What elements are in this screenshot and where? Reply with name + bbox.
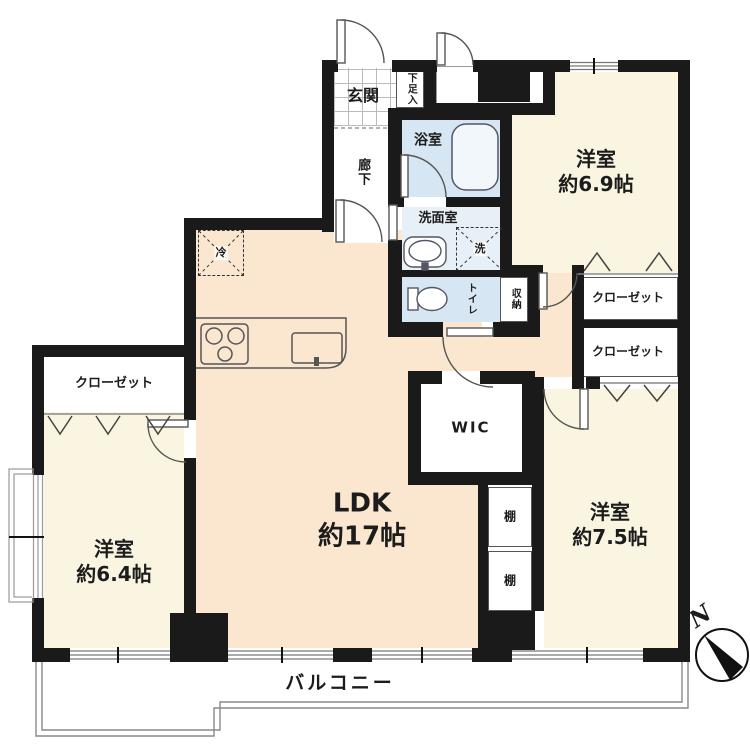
wall-segment [184,218,196,357]
wall-segment [586,377,600,389]
wall-segment [184,458,196,615]
shoe-cabinet-label: 下足入 [404,73,417,106]
fridge-label: 冷 [215,246,228,260]
wall-segment [32,345,44,475]
hallway-label: 廊下 [354,158,370,186]
balcony-label: バルコニー [285,672,395,696]
bedroom-69-floor [555,72,678,112]
bedroom-64-label: 洋室 約6.4帖 [76,537,151,587]
wall-segment [643,648,690,662]
ldk-label: LDK 約17帖 [318,488,406,553]
wall-segment [500,108,512,270]
wall-segment [170,648,228,662]
wic-label: WIC [451,419,490,438]
wall-segment [478,485,488,611]
floorplan: 玄関 下足入 廊下 浴室 洗面室 洗 冷 トイレ 収納 洋室 約6.9帖 洋室 … [0,0,750,750]
shelf-upper-label: 棚 [504,510,516,525]
wall-segment [32,648,70,662]
wall-segment [512,265,543,277]
closet-right-lower-label: クローゼット [592,345,664,360]
bedroom-75-label: 洋室 約7.5帖 [572,500,647,550]
wall-segment [333,648,372,662]
wall-segment [32,345,196,357]
genkan-label: 玄関 [347,86,379,106]
north-needle-icon [704,635,743,680]
wall-segment [528,270,540,337]
wall-segment [532,377,544,611]
closet-left-label: クローゼット [75,376,153,392]
wall-segment [388,108,402,205]
wall-segment [388,108,512,120]
washer-label: 洗 [474,242,487,256]
bedroom-64-floor [44,412,184,648]
compass [696,629,748,681]
wall-segment [388,322,443,337]
shelf-lower-label: 棚 [504,574,516,589]
wall-segment [184,357,196,420]
compass-circle [696,629,748,681]
storage-label: 収納 [508,288,521,310]
wall-segment [572,320,678,328]
toilet-floor [402,277,500,322]
wall-segment [184,218,334,230]
wall-segment [472,648,512,662]
washroom-label: 洗面室 [418,211,457,227]
wall-segment [388,197,404,207]
toilet-label: トイレ [464,283,477,316]
bedroom-69-label: 洋室 約6.9帖 [558,147,633,197]
bathroom-label: 浴室 [414,132,442,150]
wall-segment [322,60,334,232]
wic-door-opening [442,371,480,384]
window-left-bay [9,469,44,602]
closet-right-upper-label: クローゼット [592,291,664,306]
wall-segment [678,60,690,662]
wall-segment [473,60,548,72]
